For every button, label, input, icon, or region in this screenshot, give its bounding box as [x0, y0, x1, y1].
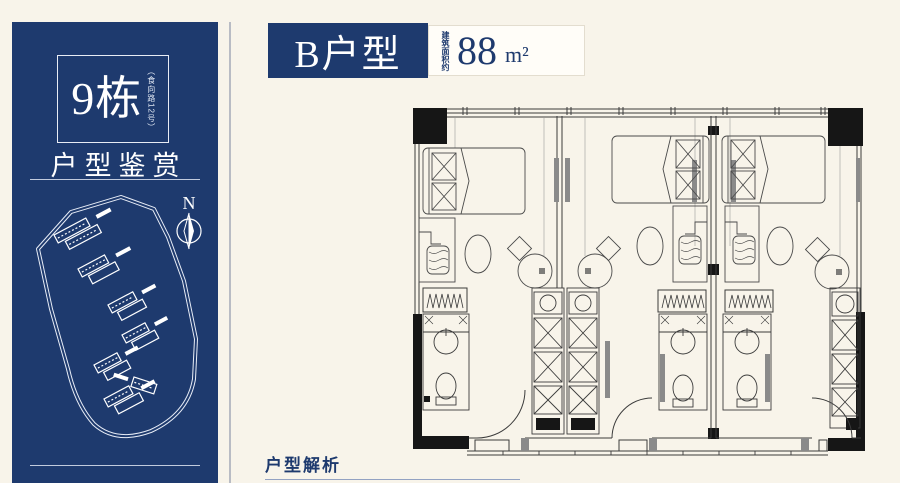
building-footprint	[78, 243, 137, 287]
sidebar-divider-bottom	[30, 465, 200, 466]
unit-type-label: B户型	[294, 23, 401, 78]
floor-plan-drawing	[413, 107, 865, 455]
site-map: N	[16, 187, 214, 459]
beds	[423, 136, 825, 214]
vertical-separator	[229, 22, 231, 483]
compass-label: N	[183, 193, 196, 213]
section-underline	[265, 479, 520, 480]
unit-type-badge: B户型	[268, 23, 428, 78]
tables	[507, 236, 849, 289]
area-prefix-label: 建筑面积约	[441, 31, 449, 71]
area-box: 建筑面积约 88 m²	[428, 25, 585, 76]
shaft-left	[532, 288, 564, 434]
building-footprint	[122, 312, 174, 352]
track-lines	[455, 118, 840, 256]
site-boundary-outer	[38, 197, 196, 436]
service-shafts	[532, 288, 860, 434]
area-value: 88	[457, 31, 497, 71]
exterior-walls	[415, 107, 861, 316]
building-number: 9栋	[71, 76, 142, 122]
section-title: 户型解析	[265, 451, 341, 476]
building-footprint	[104, 374, 160, 417]
sidebar-panel: 9栋 （食向路12号） 户型鉴赏	[12, 22, 218, 483]
site-boundary-inner	[38, 197, 196, 436]
building-address: （食向路12号）	[146, 67, 154, 132]
area-unit: m²	[505, 34, 529, 68]
building-footprint	[54, 206, 118, 253]
shaft-right	[567, 288, 599, 434]
building-number-badge: 9栋 （食向路12号）	[57, 55, 169, 143]
floor-plan	[403, 96, 873, 466]
sidebar-title: 户型鉴赏	[12, 144, 218, 183]
sidebar-divider-top	[30, 179, 200, 180]
building-footprint	[108, 281, 162, 323]
compass-icon: N	[177, 193, 201, 249]
wardrobes	[423, 288, 773, 312]
shaft-east	[830, 288, 860, 430]
